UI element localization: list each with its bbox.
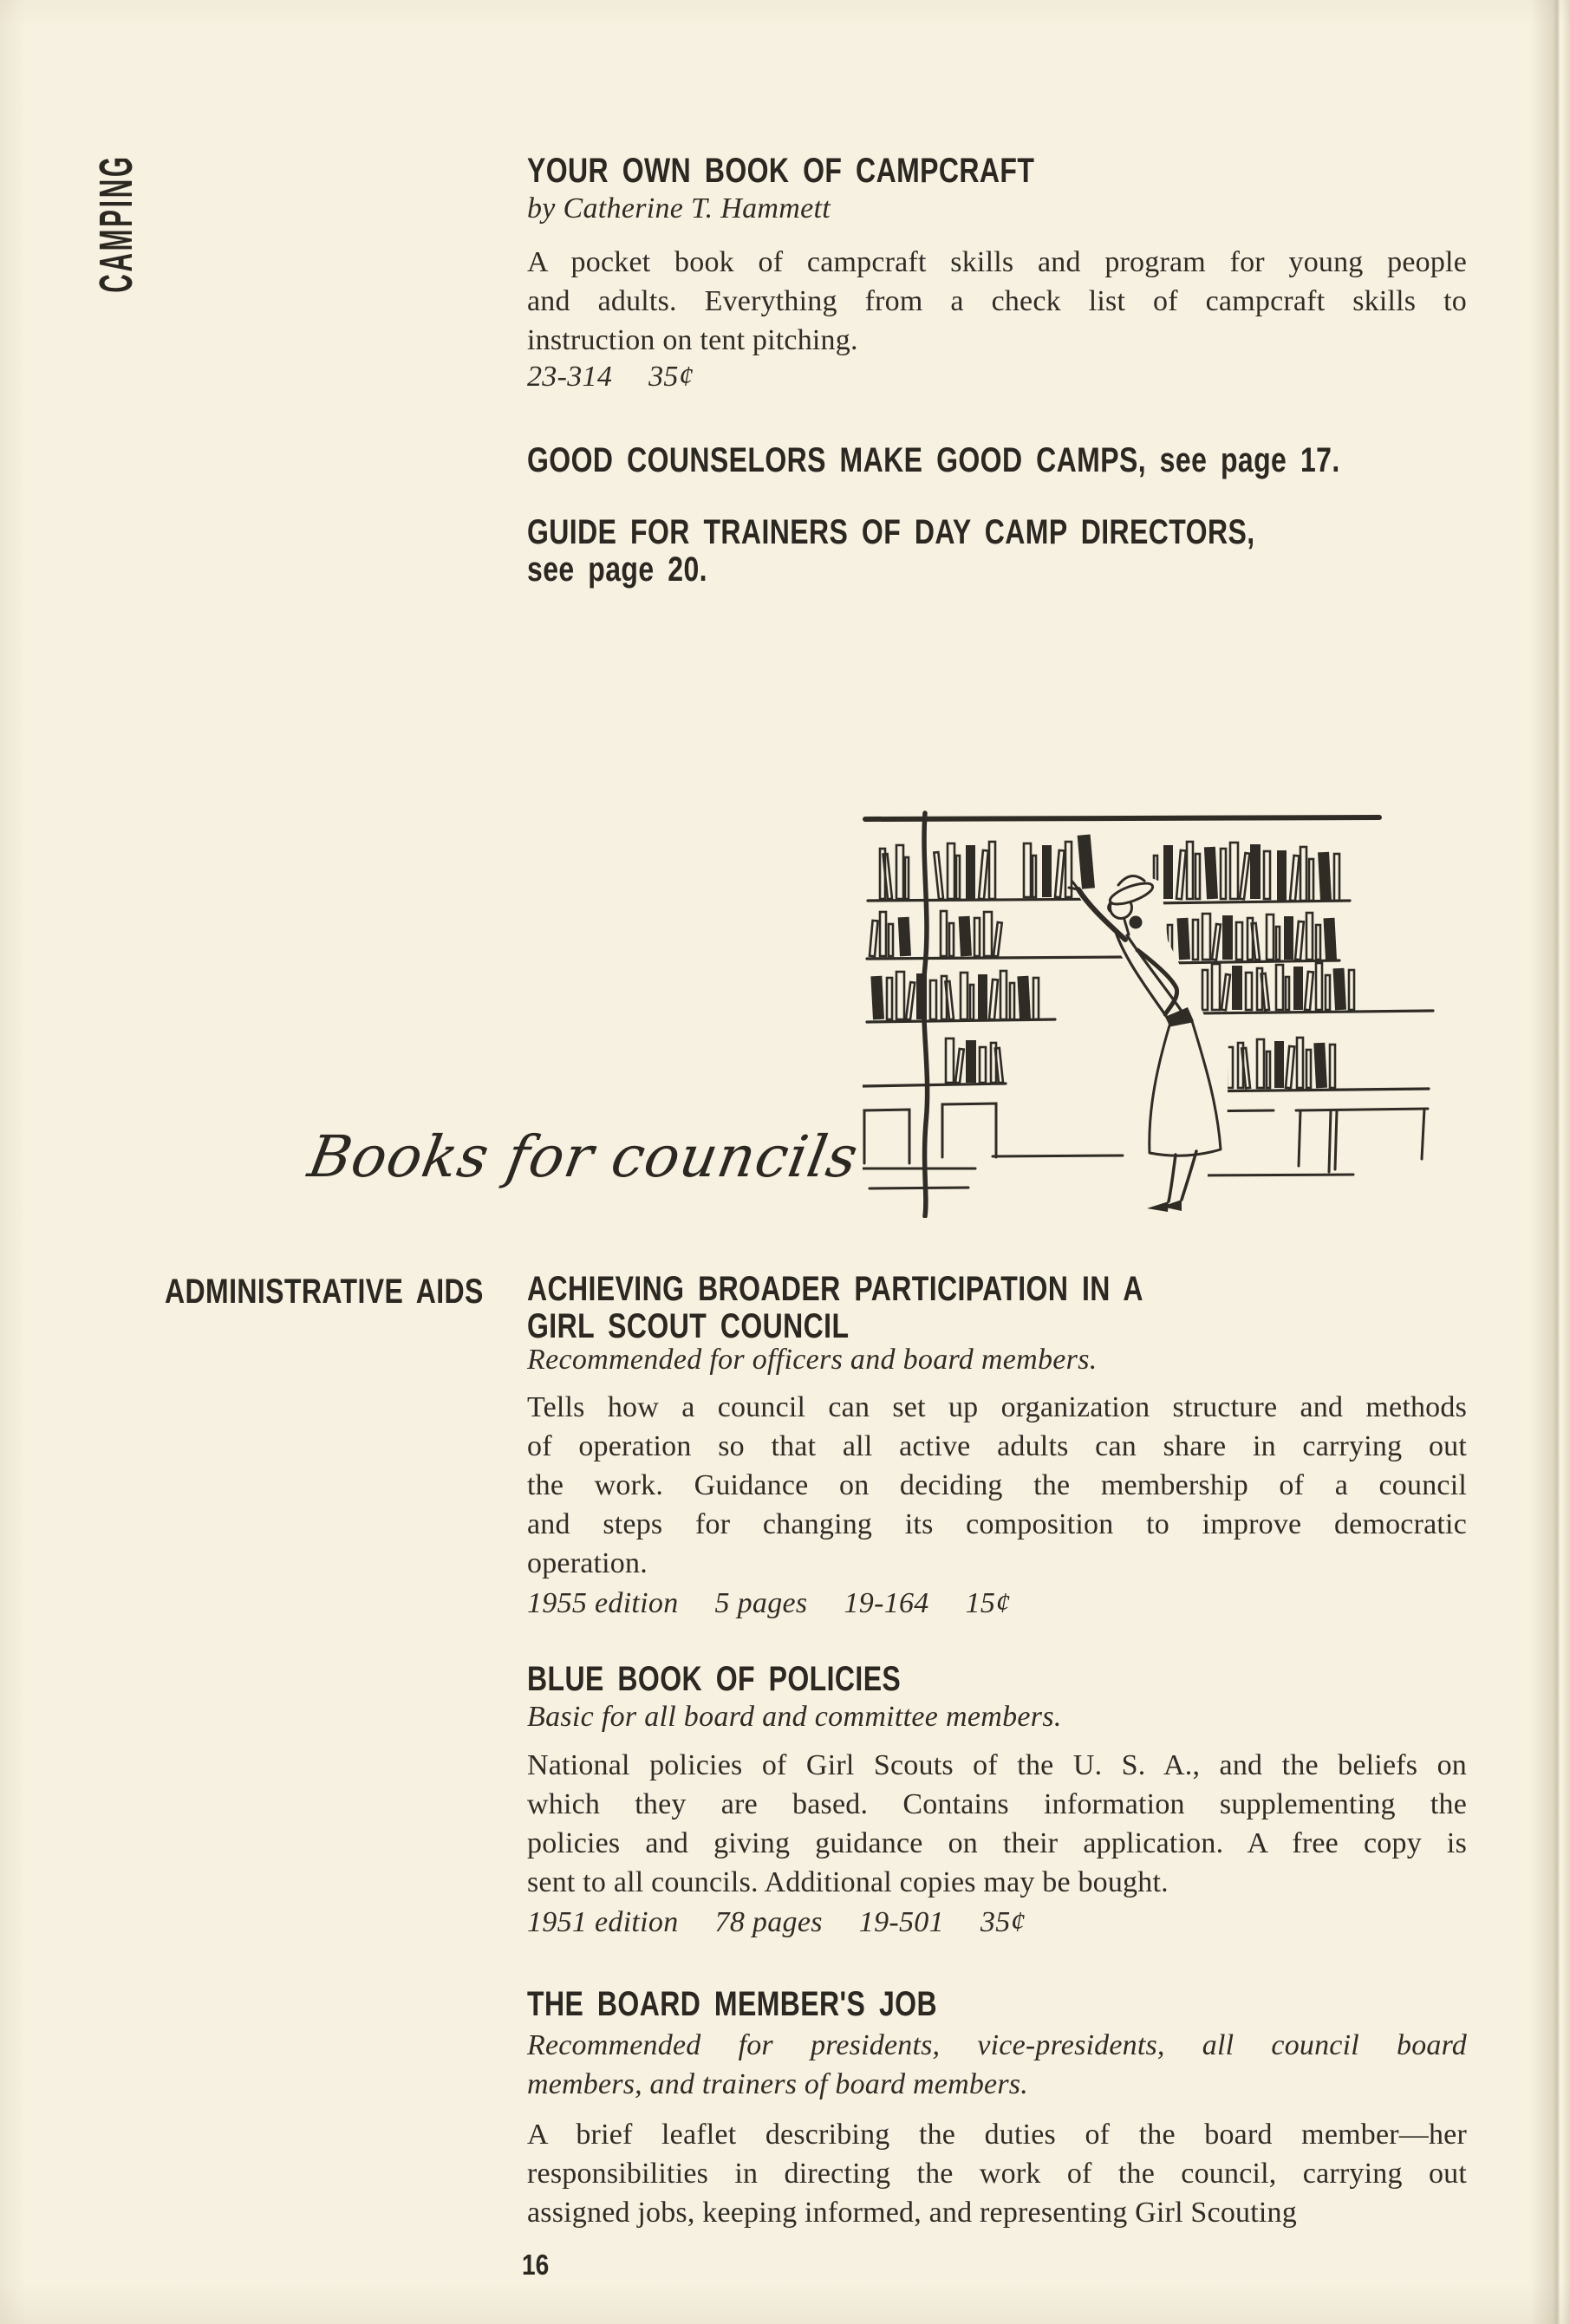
book-spine [1276, 927, 1280, 960]
book-spine [1163, 845, 1173, 899]
category-label-administrative-aids: ADMINISTRATIVE AIDS [165, 1273, 484, 1311]
book-spine [1240, 853, 1249, 899]
book-spine [1293, 967, 1303, 1010]
book-spine [966, 1040, 976, 1083]
book-spine [1221, 849, 1226, 899]
catalog-page: CAMPING YOUR OWN BOOK OF CAMPCRAFT by Ca… [0, 0, 1570, 2324]
book-spine [1246, 973, 1252, 1010]
listing-meta: 1955 edition5 pages19-16415¢ [527, 1586, 1011, 1621]
meta-part: 35¢ [648, 361, 694, 393]
scan-page-edge [1530, 0, 1570, 2324]
listing-audience: Recommended for presidents, vice-preside… [527, 2026, 1467, 2104]
book-spine [1042, 845, 1052, 897]
listing-body: A brief leaflet describing the duties of… [527, 2115, 1467, 2232]
listing-title-guide-for-trainers: GUIDE FOR TRAINERS OF DAY CAMP DIRECTORS… [527, 514, 1254, 589]
book-spine [1195, 854, 1200, 899]
book-spine [1212, 964, 1220, 1010]
book-spine [1290, 856, 1300, 901]
book-spine [1000, 971, 1006, 1019]
book-spine [974, 918, 980, 956]
book-spine [1284, 916, 1293, 960]
book-spine [946, 1038, 954, 1083]
book-spine [1250, 844, 1261, 899]
book-spine [989, 980, 998, 1019]
hair-bun [1130, 916, 1143, 929]
book-spine [930, 980, 936, 1019]
book-spine [948, 843, 954, 899]
text-line: sent to all councils. Additional copies … [527, 1863, 1467, 1902]
listing-title-line: GOOD COUNSELORS MAKE GOOD CAMPS, see pag… [527, 442, 1340, 479]
text-line: the work. Guidance on deciding the membe… [527, 1466, 1467, 1505]
listing-audience: Basic for all board and committee member… [527, 1700, 1062, 1735]
book-spine [1257, 1039, 1264, 1088]
book-spine [1193, 920, 1198, 960]
listing-meta: 23-31435¢ [527, 360, 694, 394]
book-spine [1316, 963, 1322, 1010]
bookshelf-illustration [863, 810, 1513, 1218]
listing-title-line: THE BOARD MEMBER'S JOB [527, 1986, 937, 2023]
text-line: policies and giving guidance on their ap… [527, 1824, 1467, 1863]
meta-part: 23-314 [527, 361, 612, 393]
listing-title-line: ACHIEVING BROADER PARTICIPATION IN A [527, 1271, 1143, 1308]
book-spine [1212, 924, 1221, 960]
book-spine [1286, 1046, 1294, 1088]
book-spine [870, 976, 884, 1020]
book-spine [956, 856, 960, 899]
book-spine [1230, 843, 1238, 899]
book-spine [1309, 859, 1313, 901]
listing-title-board-members-job: THE BOARD MEMBER'S JOB [527, 1986, 937, 2023]
book-spine [896, 845, 903, 899]
meta-part: 1951 edition [527, 1906, 679, 1938]
text-line: and adults. Everything from a check list… [527, 282, 1467, 321]
book-spine [934, 852, 943, 899]
meta-part: 35¢ [980, 1906, 1026, 1938]
book-spine [978, 974, 987, 1019]
book-spine [1202, 970, 1208, 1010]
listing-title-line: GUIDE FOR TRAINERS OF DAY CAMP DIRECTORS… [527, 514, 1254, 551]
book-spine [966, 845, 975, 899]
book-spine [1267, 1051, 1270, 1088]
book-spine [1295, 921, 1304, 960]
listing-title-blue-book-of-policies: BLUE BOOK OF POLICIES [527, 1661, 901, 1698]
listing-title-good-counselors: GOOD COUNSELORS MAKE GOOD CAMPS, see pag… [527, 442, 1340, 479]
book-spine [1267, 915, 1274, 960]
book-spine [980, 1047, 986, 1083]
listing-title-line: GIRL SCOUT COUNCIL [527, 1308, 1143, 1345]
book-spine [1222, 915, 1233, 960]
text-line: A brief leaflet describing the duties of… [527, 2115, 1467, 2154]
meta-part: 19-164 [844, 1587, 928, 1619]
book-spine [1323, 918, 1336, 960]
book-spine [1274, 1041, 1284, 1088]
page-number: 16 [522, 2249, 549, 2282]
book-spine [1326, 975, 1330, 1010]
book-spine [1300, 847, 1306, 901]
text-line: Tells how a council can set up organizat… [527, 1388, 1467, 1427]
book-spine [1276, 965, 1283, 1010]
book-spine [905, 857, 909, 899]
book-spine [1332, 968, 1345, 1011]
text-line: instruction on tent pitching. [527, 321, 1467, 360]
text-line: which they are based. Contains informati… [527, 1785, 1467, 1824]
book-spine [970, 985, 974, 1019]
book-spine [916, 973, 927, 1019]
text-line: members, and trainers of board members. [527, 2065, 1467, 2104]
book-spine [1221, 974, 1230, 1010]
text-line: responsibilities in directing the work o… [527, 2154, 1467, 2193]
listing-body: Tells how a council can set up organizat… [527, 1388, 1467, 1583]
listing-title-line: BLUE BOOK OF POLICIES [527, 1661, 901, 1698]
book-spine [1187, 842, 1193, 899]
book-spine [1264, 851, 1270, 899]
book-spine [1033, 856, 1036, 897]
book-spine [1176, 918, 1189, 960]
book-spine [1349, 970, 1354, 1010]
meta-part: 1955 edition [527, 1587, 679, 1619]
book-spine [984, 912, 992, 956]
book-spine [959, 916, 972, 957]
book-spine [1306, 1050, 1311, 1088]
book-spine [941, 911, 947, 956]
book-spine [1316, 925, 1320, 960]
book-spine [889, 924, 893, 956]
script-section-heading: Books for councils [303, 1123, 863, 1190]
book-spine [1204, 847, 1218, 900]
book-spine [1330, 1045, 1335, 1088]
book-spine [1318, 852, 1332, 902]
book-spine [1055, 850, 1065, 897]
book-spine [1236, 922, 1242, 960]
meta-part: 19-501 [859, 1906, 944, 1938]
text-line: National policies of Girl Scouts of the … [527, 1746, 1467, 1785]
book-spine [898, 917, 911, 957]
text-line: Recommended for presidents, vice-preside… [527, 2026, 1467, 2065]
book-spine [1306, 913, 1313, 960]
book-spine [949, 923, 954, 956]
text-line: A pocket book of campcraft skills and pr… [527, 243, 1467, 282]
listing-title-achieving-broader-participation: ACHIEVING BROADER PARTICIPATION IN A GIR… [527, 1271, 1143, 1345]
book-spine [1305, 972, 1313, 1010]
book-spine [1176, 850, 1186, 899]
text-line: and steps for changing its composition t… [527, 1505, 1467, 1544]
camping-sidebar-label: CAMPING [89, 154, 143, 293]
meta-part: 5 pages [715, 1587, 808, 1619]
book-spine [1202, 914, 1210, 960]
book-spine [880, 912, 886, 956]
text-line: of operation so that all active adults c… [527, 1427, 1467, 1466]
listing-title-line: see page 20. [527, 551, 1254, 589]
book-spine [989, 842, 995, 899]
book-spine [1286, 977, 1289, 1010]
text-line: assigned jobs, keeping informed, and rep… [527, 2193, 1467, 2232]
book-spine [870, 921, 878, 956]
listing-body: A pocket book of campcraft skills and pr… [527, 243, 1467, 360]
book-spine [1334, 854, 1339, 901]
book-spine [1017, 976, 1031, 1020]
listing-title-your-own-book: YOUR OWN BOOK OF CAMPCRAFT [527, 153, 1034, 190]
meta-part: 15¢ [966, 1587, 1011, 1619]
figure-silhouette [1072, 866, 1228, 1214]
book-spine [1010, 983, 1014, 1019]
book-spine [979, 850, 988, 899]
reached-book [1078, 835, 1095, 889]
book-spine [955, 1049, 964, 1083]
book-spine [993, 922, 1002, 956]
book-spine [1024, 843, 1031, 897]
book-spine [961, 973, 967, 1019]
book-spine [887, 978, 892, 1019]
book-spine [1033, 978, 1039, 1019]
book-spine [906, 982, 915, 1019]
listing-meta: 1951 edition78 pages19-50135¢ [527, 1905, 1026, 1940]
woman-figure [1069, 835, 1228, 1214]
listing-audience: Recommended for officers and board membe… [527, 1343, 1098, 1377]
listing-body: National policies of Girl Scouts of the … [527, 1746, 1467, 1902]
category-label-line: ADMINISTRATIVE AIDS [165, 1273, 484, 1311]
meta-part: 78 pages [715, 1906, 823, 1938]
book-spine [1277, 850, 1287, 901]
text-line: operation. [527, 1544, 1467, 1583]
listing-byline: by Catherine T. Hammett [527, 192, 831, 226]
listing-title-line: YOUR OWN BOOK OF CAMPCRAFT [527, 153, 1034, 190]
book-spine [1313, 1043, 1327, 1089]
book-spine [896, 972, 904, 1019]
book-spine [1232, 966, 1242, 1010]
book-spine [1297, 1038, 1303, 1088]
